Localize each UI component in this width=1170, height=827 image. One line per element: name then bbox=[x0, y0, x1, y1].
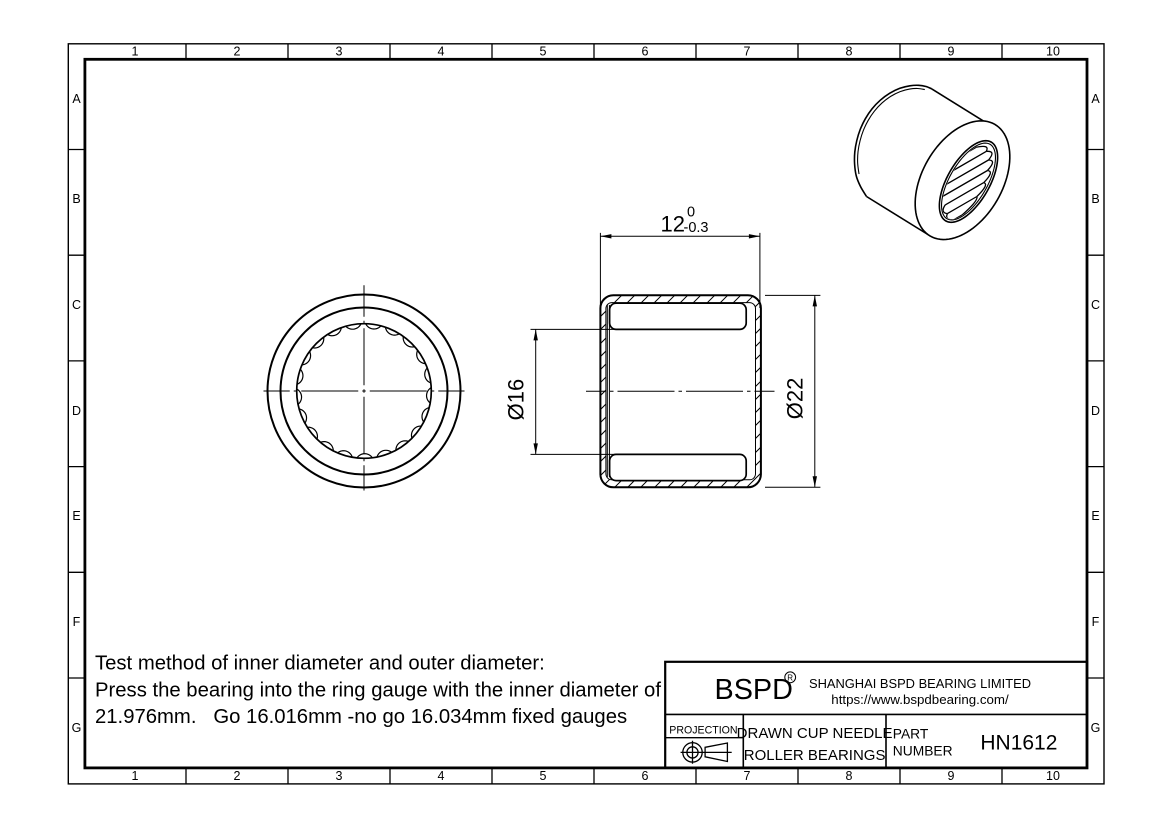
svg-text:SHANGHAI BSPD BEARING LIMITED: SHANGHAI BSPD BEARING LIMITED bbox=[809, 676, 1031, 691]
svg-text:2: 2 bbox=[234, 45, 241, 59]
svg-text:5: 5 bbox=[540, 769, 547, 783]
svg-text:10: 10 bbox=[1046, 45, 1060, 59]
svg-text:5: 5 bbox=[540, 45, 547, 59]
svg-text:G: G bbox=[72, 721, 82, 735]
svg-text:E: E bbox=[72, 509, 80, 523]
svg-text:7: 7 bbox=[744, 45, 751, 59]
svg-text:C: C bbox=[72, 298, 81, 312]
svg-text:12: 12 bbox=[661, 211, 685, 236]
svg-text:Ø22: Ø22 bbox=[783, 378, 808, 420]
svg-text:3: 3 bbox=[336, 45, 343, 59]
svg-text:1: 1 bbox=[132, 769, 139, 783]
svg-text:F: F bbox=[73, 615, 81, 629]
svg-text:R: R bbox=[787, 673, 793, 682]
svg-text:D: D bbox=[1091, 404, 1100, 418]
svg-text:1: 1 bbox=[132, 45, 139, 59]
svg-text:6: 6 bbox=[642, 45, 649, 59]
svg-text:DRAWN CUP NEEDLE: DRAWN CUP NEEDLE bbox=[737, 725, 893, 742]
svg-text:4: 4 bbox=[438, 45, 445, 59]
svg-text:D: D bbox=[72, 404, 81, 418]
svg-text:8: 8 bbox=[846, 45, 853, 59]
svg-text:A: A bbox=[72, 92, 81, 106]
svg-text:-0.3: -0.3 bbox=[684, 220, 709, 236]
svg-text:ROLLER BEARINGS: ROLLER BEARINGS bbox=[744, 747, 886, 764]
svg-text:Press the bearing into the rin: Press the bearing into the ring gauge wi… bbox=[95, 680, 661, 702]
svg-text:HN1612: HN1612 bbox=[980, 732, 1057, 755]
svg-text:B: B bbox=[1091, 192, 1099, 206]
svg-text:PART: PART bbox=[893, 726, 929, 741]
svg-text:NUMBER: NUMBER bbox=[893, 743, 953, 758]
svg-text:F: F bbox=[1092, 615, 1100, 629]
svg-text:A: A bbox=[1091, 92, 1100, 106]
svg-text:10: 10 bbox=[1046, 769, 1060, 783]
svg-text:9: 9 bbox=[948, 45, 955, 59]
svg-text:C: C bbox=[1091, 298, 1100, 312]
svg-text:3: 3 bbox=[336, 769, 343, 783]
svg-text:8: 8 bbox=[846, 769, 853, 783]
svg-text:https://www.bspdbearing.com/: https://www.bspdbearing.com/ bbox=[831, 692, 1009, 707]
svg-text:Test method of inner diameter: Test method of inner diameter and outer … bbox=[95, 653, 545, 675]
svg-text:7: 7 bbox=[744, 769, 751, 783]
svg-text:G: G bbox=[1091, 721, 1101, 735]
svg-text:4: 4 bbox=[438, 769, 445, 783]
svg-text:21.976mm. Go 16.016mm -no go: 21.976mm. Go 16.016mm -no go 16.034mm fi… bbox=[95, 706, 627, 728]
svg-text:E: E bbox=[1091, 509, 1099, 523]
svg-text:Ø16: Ø16 bbox=[504, 379, 529, 421]
svg-text:B: B bbox=[72, 192, 80, 206]
svg-text:2: 2 bbox=[234, 769, 241, 783]
svg-text:9: 9 bbox=[948, 769, 955, 783]
svg-text:6: 6 bbox=[642, 769, 649, 783]
svg-text:0: 0 bbox=[687, 205, 695, 221]
svg-text:PROJECTION: PROJECTION bbox=[669, 725, 737, 737]
svg-text:BSPD: BSPD bbox=[715, 674, 793, 706]
